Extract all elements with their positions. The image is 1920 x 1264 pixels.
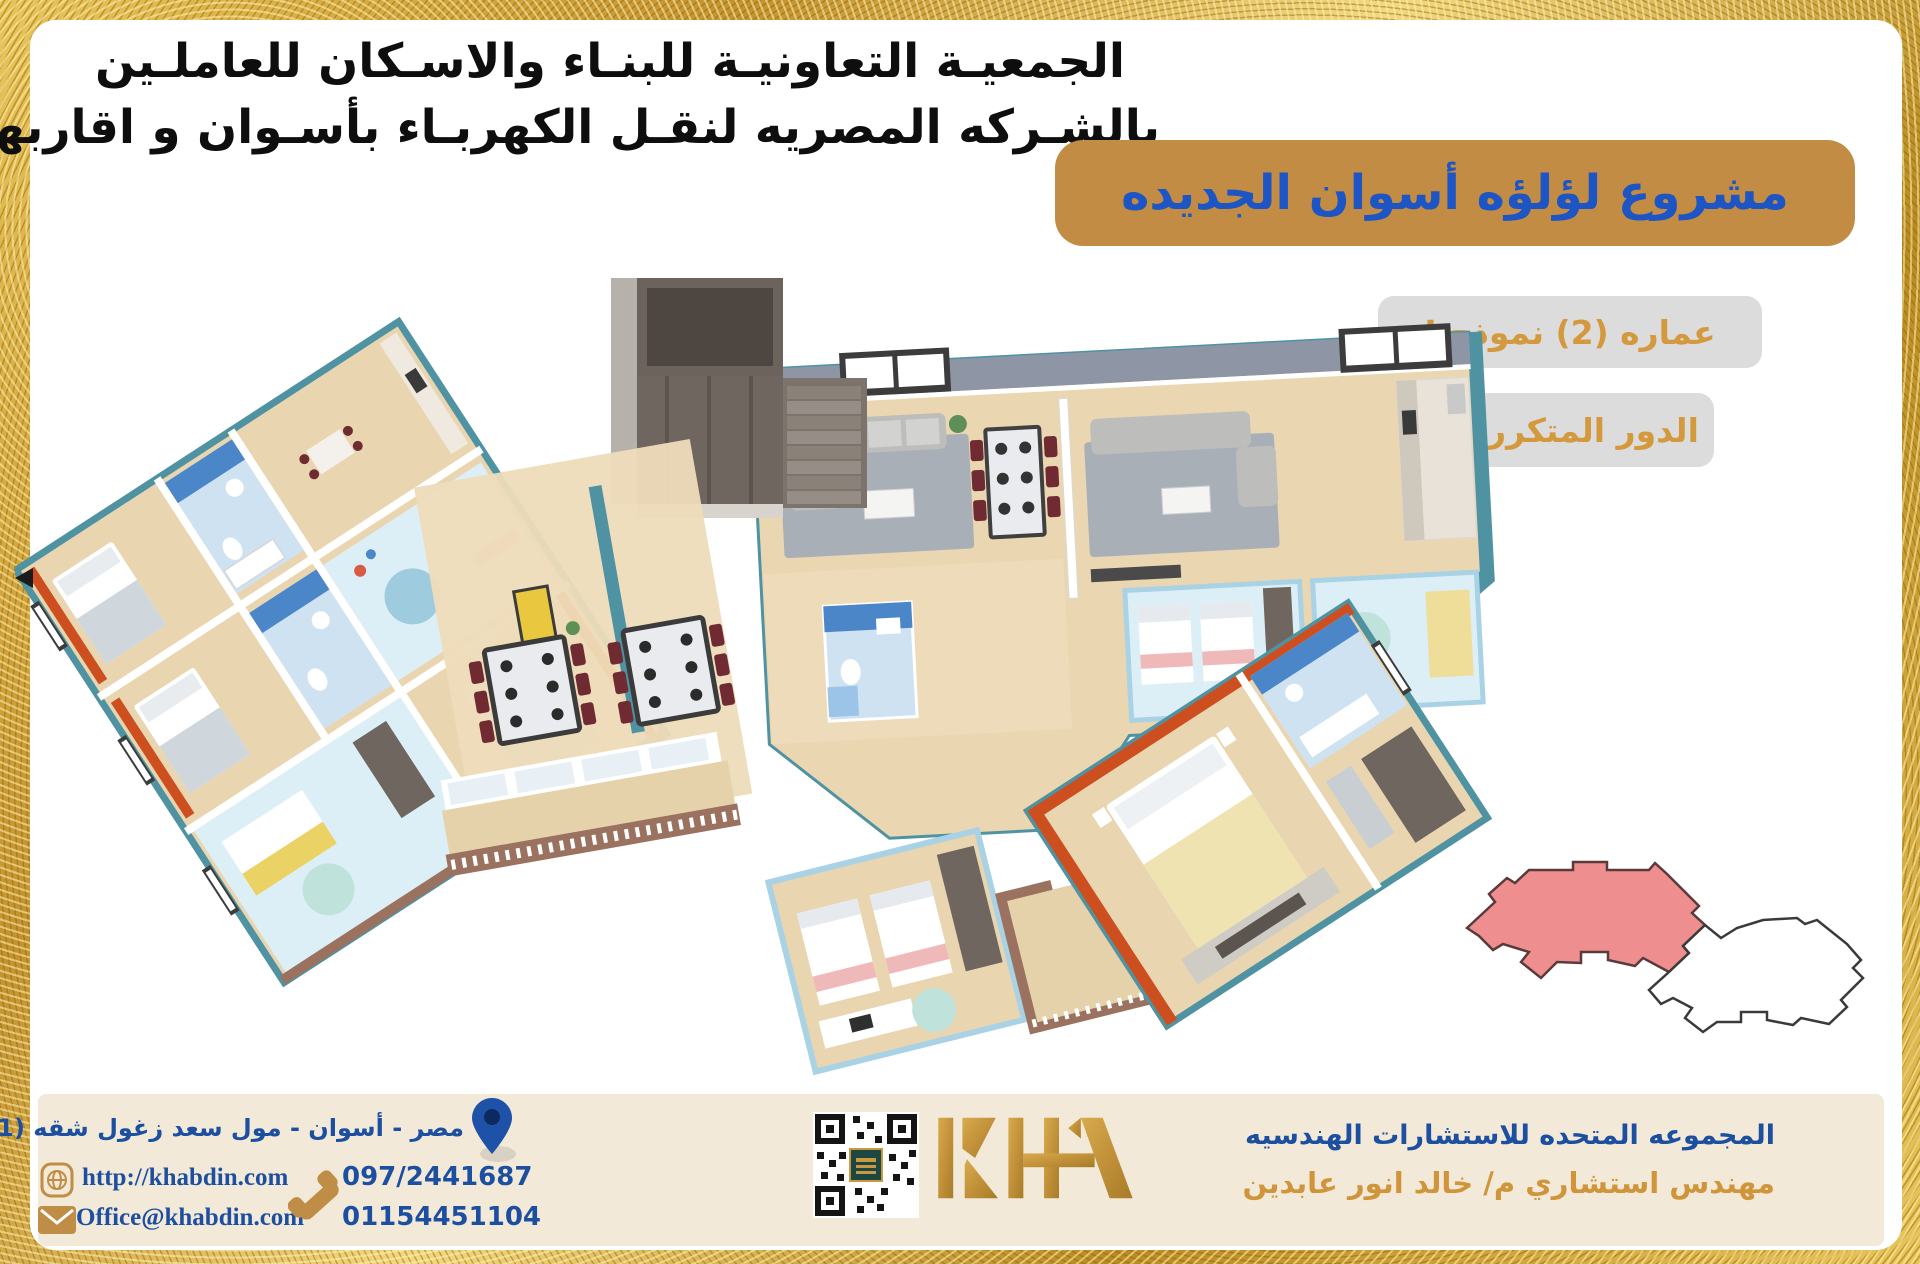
header-title-line1: الجمعيـة التعاونيـة للبنـاء والاسـكان لل…	[80, 34, 1140, 89]
globe-icon	[40, 1162, 74, 1198]
kha-logo-text: KHA	[936, 1112, 937, 1113]
key-plan-highlighted-block	[1467, 862, 1705, 978]
key-plan-diagram	[1445, 832, 1885, 1047]
kha-logo: KHA	[936, 1112, 1136, 1204]
phone-icon	[288, 1170, 348, 1230]
header-title-line2: بالشـركه المصريه لنقـل الكهربـاء بأسـوان…	[40, 100, 1160, 155]
project-name-label: مشروع لؤلؤه أسوان الجديده	[1121, 165, 1789, 221]
floor-plan-3d-render	[15, 256, 1515, 1091]
phone-number-2: 01154451104	[342, 1202, 541, 1232]
window-icon	[1338, 323, 1452, 373]
website-text: http://khabdin.com	[82, 1164, 288, 1192]
phone-number-1: 097/2441687	[342, 1162, 532, 1192]
floor-type-label: الدور المتكرر	[1487, 411, 1699, 450]
location-pin-icon	[470, 1096, 520, 1164]
company-name-text: المجموعه المتحده للاستشارات الهندسيه	[1255, 1120, 1775, 1151]
project-name-badge: مشروع لؤلؤه أسوان الجديده	[1055, 140, 1855, 246]
flyer-page: الجمعيـة التعاونيـة للبنـاء والاسـكان لل…	[0, 0, 1920, 1264]
email-text: Office@khabdin.com	[76, 1204, 304, 1232]
address-text: مصر - أسوان - مول سعد زغول شقه (201)	[44, 1114, 464, 1142]
qr-code	[813, 1112, 919, 1218]
consultant-name-text: مهندس استشاري م/ خالد انور عابدين	[1255, 1166, 1775, 1200]
envelope-icon	[38, 1206, 76, 1234]
